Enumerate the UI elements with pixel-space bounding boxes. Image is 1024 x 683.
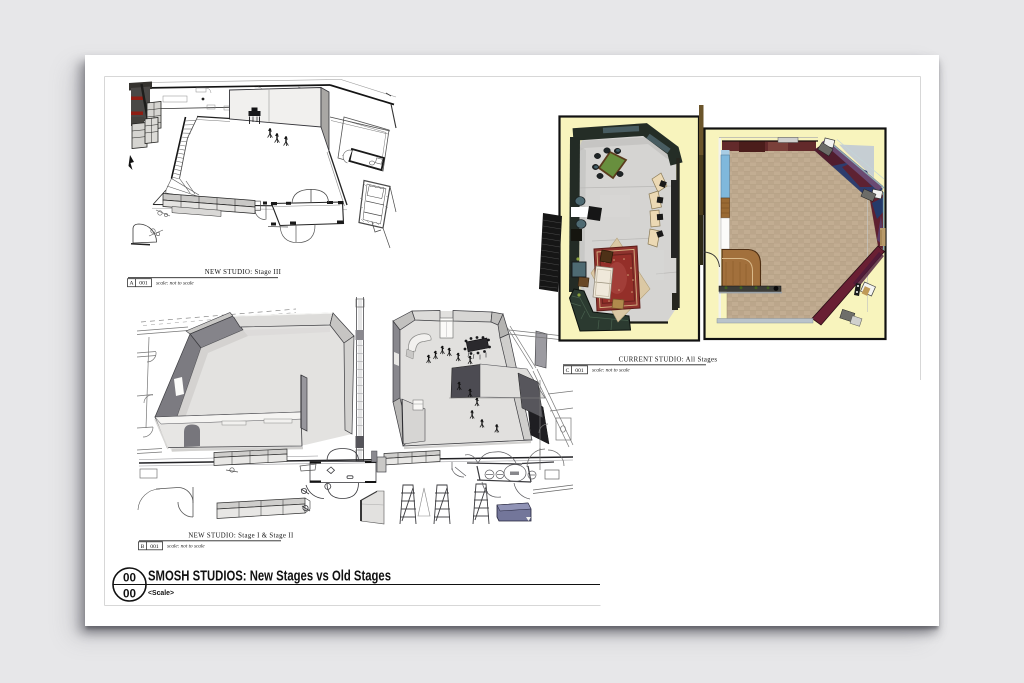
svg-text:scale: not to scale: scale: not to scale: [156, 280, 194, 286]
svg-text:001: 001: [575, 368, 584, 374]
svg-text:B: B: [141, 544, 145, 550]
svg-text:A: A: [129, 281, 133, 287]
svg-text:001: 001: [150, 544, 159, 550]
svg-text:001: 001: [139, 281, 148, 287]
svg-text:scale: not to scale: scale: not to scale: [592, 367, 630, 373]
svg-text:NEW STUDIO: Stage III: NEW STUDIO: Stage III: [205, 269, 282, 276]
svg-text:SMOSH STUDIOS: New Stages vs O: SMOSH STUDIOS: New Stages vs Old Stages: [148, 569, 391, 585]
svg-text:00: 00: [123, 571, 136, 585]
svg-text:CURRENT STUDIO: All Stages: CURRENT STUDIO: All Stages: [619, 357, 718, 364]
svg-text:00: 00: [123, 587, 136, 601]
svg-text:C: C: [566, 368, 570, 374]
svg-text:NEW STUDIO: Stage I & Stage II: NEW STUDIO: Stage I & Stage II: [188, 533, 294, 540]
svg-text:<Scale>: <Scale>: [148, 588, 175, 597]
svg-text:scale: not to scale: scale: not to scale: [167, 543, 205, 549]
